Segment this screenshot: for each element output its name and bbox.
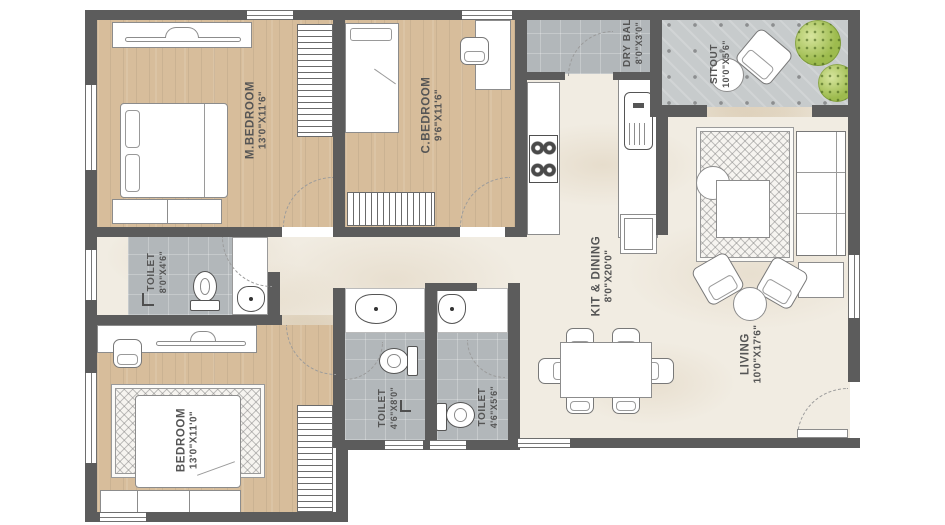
double-bed: [120, 103, 228, 198]
dining-table: [560, 342, 652, 398]
room-name: KIT & DINING: [591, 236, 604, 317]
pillow: [125, 154, 140, 192]
fridge: [620, 214, 657, 254]
wall-segment: [437, 283, 477, 291]
window: [848, 255, 860, 318]
room-label-sitout: SITOUT 10'0"X5'6": [709, 40, 731, 88]
shower-icon: [400, 400, 411, 412]
room-dims: 8'0"X20'0": [604, 236, 616, 317]
window: [85, 373, 97, 463]
wall-segment: [650, 10, 662, 117]
wardrobe: [297, 24, 333, 137]
toilet-wc-tank: [190, 300, 220, 311]
window: [100, 512, 146, 522]
wall-segment: [85, 315, 282, 325]
wall-segment: [520, 438, 860, 448]
window: [385, 440, 423, 450]
room-dims: 10'0"X5'6": [721, 40, 731, 88]
wall-segment: [515, 20, 527, 237]
round-table: [733, 287, 767, 321]
room-name: SITOUT: [709, 40, 721, 88]
wall-segment: [520, 72, 565, 80]
wall-segment: [613, 72, 650, 80]
room-dims: 4'6"X8'0": [389, 387, 399, 429]
room-label-c-bedroom: C.BEDROOM 9'6"X11'6": [421, 77, 446, 154]
room-label-m-bedroom: M.BEDROOM 13'0"X11'6": [245, 81, 270, 159]
room-label-toilet-left: TOILET 4'6"X8'0": [377, 387, 399, 429]
room-name: C.BEDROOM: [421, 77, 434, 154]
washbasin-icon: [355, 294, 397, 324]
dresser-mirror: [165, 27, 199, 38]
wall-segment: [848, 318, 860, 382]
window: [85, 85, 97, 170]
plant-icon: [795, 20, 841, 66]
room-name: TOILET: [377, 387, 389, 429]
desk-chair: [113, 339, 142, 368]
shower-icon: [142, 293, 154, 306]
toilet-wc-icon: [446, 402, 475, 428]
room-name: TOILET: [477, 386, 489, 428]
room-dims: 13'0"X11'6": [258, 81, 270, 159]
toilet-wc-icon: [193, 271, 217, 302]
wardrobe: [297, 405, 333, 512]
blanket-fold: [197, 461, 235, 476]
washbasin-icon: [237, 286, 265, 312]
room-name: LIVING: [740, 325, 753, 384]
window: [85, 250, 97, 300]
sink-icon: [624, 92, 653, 150]
room-name: TOILET: [146, 251, 158, 293]
room-label-living: LIVING 10'0"X17'6": [740, 325, 765, 384]
wall-segment: [812, 105, 848, 117]
room-dims: 13'0"X11'0": [189, 408, 201, 472]
blanket-fold: [374, 69, 396, 85]
room-dims: 10'0"X17'6": [753, 325, 765, 384]
room-dims: 8'0"X3'0": [634, 19, 644, 67]
desk-chair: [460, 37, 489, 65]
coffee-table: [716, 180, 770, 238]
bed-bench: [137, 490, 241, 513]
floor-plan: M.BEDROOM 13'0"X11'6" C.BEDROOM 9'6"X11'…: [0, 0, 945, 525]
bed-bench: [112, 199, 222, 224]
room-label-toilet-top: TOILET 8'0"X4'6": [146, 251, 168, 293]
room-label-dry-bal: DRY BAL 8'0"X3'0": [622, 19, 644, 67]
window: [430, 440, 466, 450]
window: [518, 438, 570, 448]
room-name: M.BEDROOM: [245, 81, 258, 159]
blanket-fold: [204, 104, 205, 197]
wall-segment: [848, 10, 860, 255]
window: [462, 10, 512, 20]
wall-segment: [656, 117, 668, 235]
wall-segment: [85, 227, 282, 237]
room-dims: 8'0"X4'6": [158, 251, 168, 293]
room-label-toilet-right: TOILET 4'6"X5'6": [477, 386, 499, 428]
room-dims: 4'6"X5'6": [489, 386, 499, 428]
window-seat: [100, 490, 138, 513]
room-name: DRY BAL: [622, 19, 634, 67]
room-dims: 9'6"X11'6": [434, 77, 446, 154]
single-bed: [345, 23, 399, 133]
wall-segment: [345, 227, 460, 237]
dresser-shelf: [156, 341, 246, 346]
wall-segment: [662, 105, 707, 117]
dresser-mirror: [190, 331, 216, 341]
wall-segment: [425, 283, 437, 450]
toilet-wc-icon: [379, 348, 409, 374]
room-label-bedroom: BEDROOM 13'0"X11'0": [176, 408, 201, 472]
room-label-kit-dining: KIT & DINING 8'0"X20'0": [591, 236, 616, 317]
dresser: [112, 22, 252, 48]
wall-segment: [336, 448, 348, 522]
wardrobe: [347, 192, 435, 226]
toilet-wc-tank: [407, 346, 418, 376]
pillow: [350, 28, 392, 41]
wall-segment: [333, 20, 345, 237]
washbasin-icon: [438, 294, 466, 324]
sofa: [796, 131, 846, 256]
main-door-leaf: [797, 429, 848, 438]
pillow: [125, 110, 140, 148]
room-name: BEDROOM: [176, 408, 189, 472]
window: [247, 10, 293, 20]
stove-icon: [529, 135, 558, 183]
wall-segment: [508, 283, 520, 448]
